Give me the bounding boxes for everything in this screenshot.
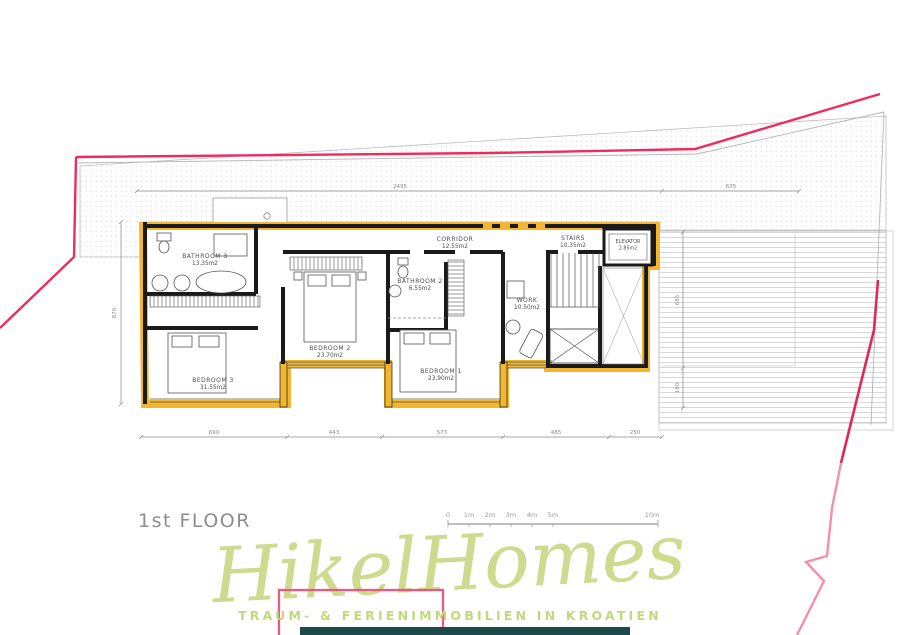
dim-top-1: 2435 — [393, 184, 407, 190]
dim-right-2: 180 — [675, 382, 681, 393]
room-area-stairs: 10.35m2 — [560, 243, 586, 249]
dim-top-2: 635 — [726, 184, 737, 190]
room-label-bathroom2: BATHROOM 2 — [397, 278, 442, 285]
logo-teal-bar — [300, 627, 630, 635]
room-label-bedroom1: BEDROOM 1 — [420, 368, 462, 375]
room-area-bedroom3: 31.55m2 — [200, 385, 226, 391]
room-area-elevator: 2.85m2 — [619, 246, 637, 252]
elevator-cab: ELEVATOR 2.85m2 — [604, 229, 652, 265]
room-area-work: 10.50m2 — [514, 305, 540, 311]
dim-right-1: 685 — [675, 294, 681, 305]
floor-plan-drawing: ELEVATOR 2.85m2 BATHROOM 3 13.35m2 BEDRO… — [0, 0, 900, 635]
room-label-stairs: STAIRS — [561, 235, 585, 242]
room-label-bathroom3: BATHROOM 3 — [182, 253, 227, 260]
room-area-bedroom1: 23.90m2 — [428, 376, 454, 382]
roof-chimney — [213, 198, 287, 223]
scale-tick-0: 0 — [446, 511, 450, 519]
room-area-bedroom2: 23.70m2 — [317, 353, 343, 359]
room-area-bathroom2: 6.55m2 — [409, 286, 432, 292]
room-label-bedroom2: BEDROOM 2 — [309, 345, 351, 352]
page-title: 1st FLOOR — [138, 510, 251, 532]
room-label-corridor: CORRIDOR — [437, 236, 474, 243]
room-area-corridor: 12.55m2 — [442, 244, 468, 250]
room-label-bedroom3: BEDROOM 3 — [192, 377, 234, 384]
bedroom2-bed — [294, 272, 366, 342]
bedroom1-bed — [400, 330, 456, 392]
logo-lockup: HikelHomes TRAUM- & FERIENIMMOBILIEN IN … — [208, 507, 688, 635]
room-area-bathroom3: 13.35m2 — [192, 261, 218, 267]
room-label-work: WORK — [517, 297, 538, 304]
floor-plan-sheet: ELEVATOR 2.85m2 BATHROOM 3 13.35m2 BEDRO… — [0, 0, 900, 635]
dim-bottom-2: 443 — [329, 430, 340, 436]
logo-tagline: TRAUM- & FERIENIMMOBILIEN IN KROATIEN — [238, 608, 662, 623]
dim-bottom-4: 485 — [551, 430, 562, 436]
room-label-elevator: ELEVATOR — [616, 239, 641, 245]
dim-left: 870 — [112, 307, 118, 318]
dim-bottom-5: 250 — [630, 430, 641, 436]
bedroom3-bed — [168, 333, 226, 393]
dim-bottom-1: 690 — [209, 430, 220, 436]
dim-bottom-3: 573 — [437, 430, 448, 436]
